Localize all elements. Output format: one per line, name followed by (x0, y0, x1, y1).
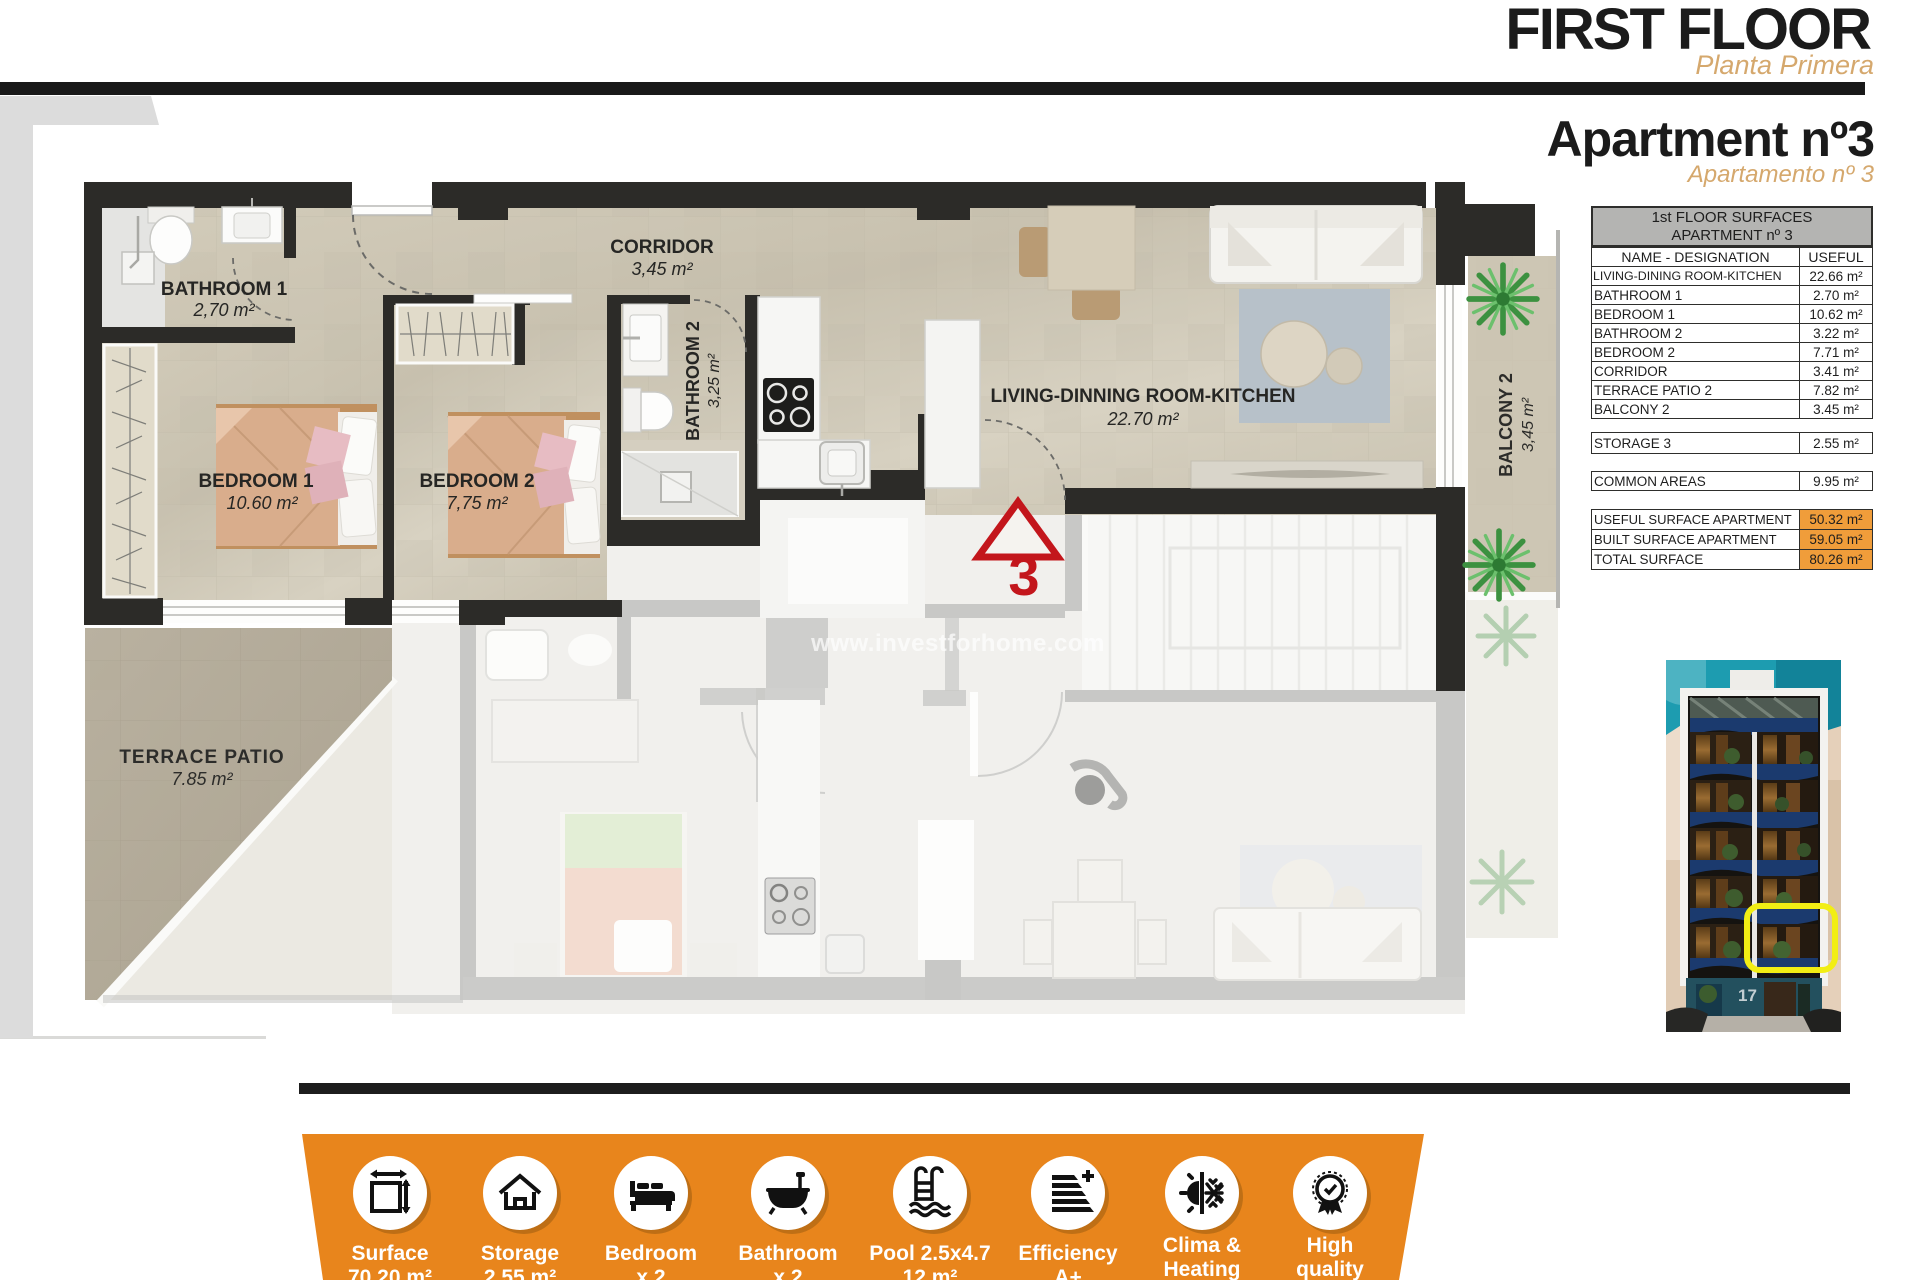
svg-text:BALCONY 2: BALCONY 2 (1496, 373, 1516, 477)
svg-text:BEDROOM 1: BEDROOM 1 (198, 471, 314, 492)
svg-text:BEDROOM 2: BEDROOM 2 (419, 471, 534, 492)
svg-text:2.55 m²: 2.55 m² (484, 1266, 556, 1280)
svg-text:LIVING-DINNING ROOM-KITCHEN: LIVING-DINNING ROOM-KITCHEN (990, 386, 1295, 407)
svg-text:quality: quality (1296, 1258, 1364, 1280)
svg-text:7,75 m²: 7,75 m² (446, 493, 508, 513)
svg-text:Heating: Heating (1163, 1258, 1240, 1280)
svg-text:CORRIDOR: CORRIDOR (610, 237, 714, 258)
svg-text:7.85 m²: 7.85 m² (171, 769, 233, 789)
svg-text:www.investforhome.com: www.investforhome.com (810, 630, 1105, 657)
svg-text:x 2: x 2 (636, 1266, 665, 1280)
svg-text:17: 17 (1738, 986, 1757, 1005)
svg-text:Bedroom: Bedroom (605, 1242, 697, 1265)
svg-text:Pool 2.5x4.7: Pool 2.5x4.7 (869, 1242, 990, 1265)
svg-text:Storage: Storage (481, 1242, 559, 1265)
svg-text:Clima &: Clima & (1163, 1234, 1241, 1257)
svg-text:TERRACE PATIO: TERRACE PATIO (119, 747, 284, 768)
svg-text:22.70 m²: 22.70 m² (1106, 409, 1179, 429)
svg-text:BATHROOM 2: BATHROOM 2 (683, 321, 703, 441)
svg-text:3,45 m²: 3,45 m² (1520, 397, 1537, 452)
svg-text:Surface: Surface (351, 1242, 428, 1265)
svg-text:2,70 m²: 2,70 m² (192, 300, 255, 320)
svg-text:12 m²: 12 m² (903, 1266, 958, 1280)
svg-text:BATHROOM 1: BATHROOM 1 (161, 279, 288, 300)
svg-text:Bathroom: Bathroom (738, 1242, 837, 1265)
svg-text:High: High (1307, 1234, 1354, 1257)
svg-text:70.20 m²: 70.20 m² (348, 1266, 432, 1280)
svg-text:3: 3 (1008, 544, 1039, 607)
svg-text:3,45 m²: 3,45 m² (631, 259, 693, 279)
svg-text:3,25 m²: 3,25 m² (706, 353, 723, 408)
svg-text:10.60 m²: 10.60 m² (226, 493, 298, 513)
svg-text:x 2: x 2 (773, 1266, 802, 1280)
svg-text:A+: A+ (1054, 1266, 1081, 1280)
svg-text:Efficiency: Efficiency (1018, 1242, 1118, 1265)
